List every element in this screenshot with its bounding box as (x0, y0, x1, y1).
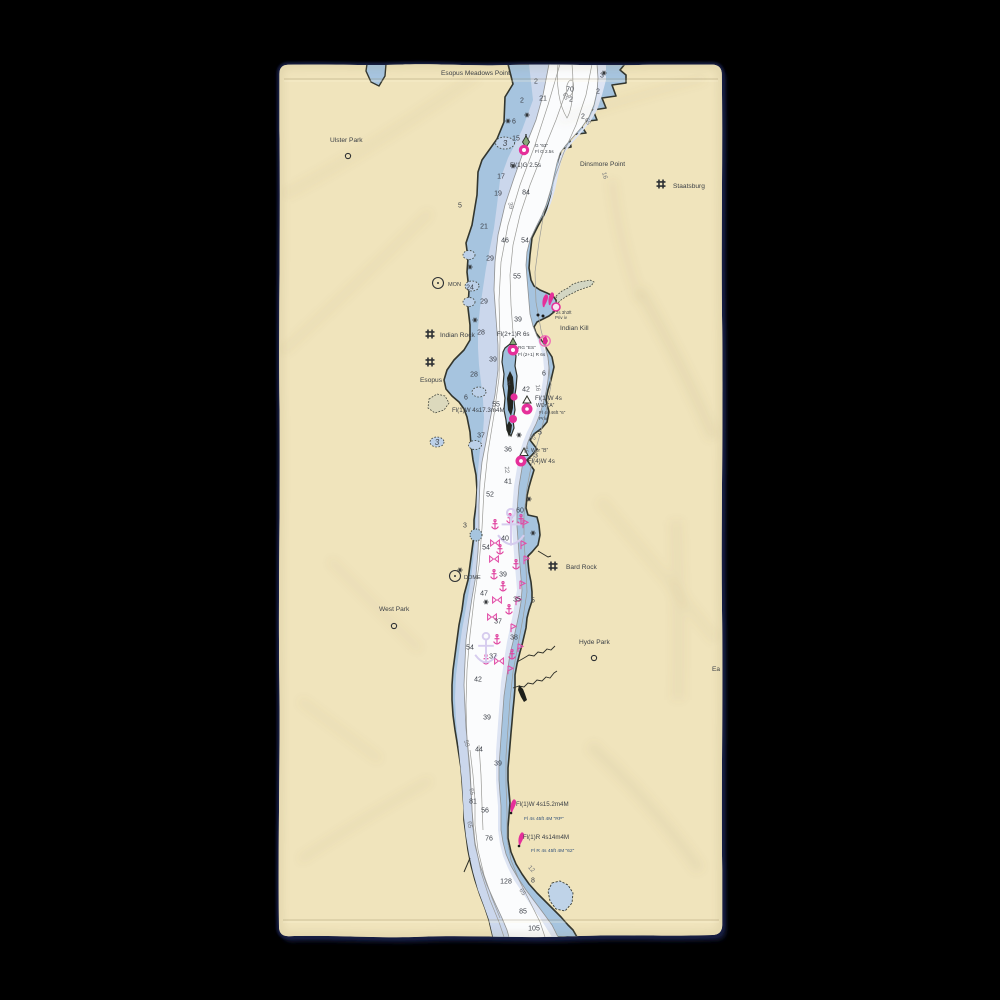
svg-text:DOME: DOME (464, 575, 481, 581)
svg-text:37: 37 (477, 433, 485, 440)
svg-text:35: 35 (513, 597, 521, 604)
svg-text:29: 29 (486, 256, 494, 263)
svg-text:5: 5 (531, 598, 535, 605)
svg-text:37: 37 (489, 654, 497, 661)
svg-text:84: 84 (522, 190, 530, 197)
svg-text:28: 28 (477, 330, 485, 337)
svg-text:2: 2 (596, 89, 600, 96)
svg-text:42: 42 (474, 677, 482, 684)
svg-text:Ulster Park: Ulster Park (330, 137, 363, 144)
svg-text:85: 85 (519, 909, 527, 916)
svg-text:Esopus: Esopus (420, 377, 443, 384)
svg-text:46: 46 (501, 238, 509, 245)
svg-text:Fl(1)R 4s14m4M: Fl(1)R 4s14m4M (523, 834, 569, 841)
svg-text:29: 29 (480, 299, 488, 306)
svg-text:3: 3 (503, 139, 508, 148)
svg-text:Fl(2+1)R 6s: Fl(2+1)R 6s (497, 331, 530, 338)
svg-text:39: 39 (489, 357, 497, 364)
svg-text:54: 54 (482, 545, 490, 552)
svg-text:Fl 4s 45ft 4M “RP”: Fl 4s 45ft 4M “RP” (524, 816, 564, 822)
svg-text:WOr “A”: WOr “A” (536, 403, 555, 409)
svg-text:Fl R 4s 45ft 4M “62”: Fl R 4s 45ft 4M “62” (531, 848, 575, 854)
svg-text:Fl(1)W 4s17.3m4M: Fl(1)W 4s17.3m4M (452, 407, 505, 414)
svg-text:2: 2 (520, 98, 524, 105)
svg-text:19: 19 (494, 191, 502, 198)
svg-text:17: 17 (497, 174, 505, 181)
svg-text:81: 81 (469, 799, 477, 806)
svg-text:128: 128 (500, 879, 512, 886)
svg-text:41: 41 (504, 479, 512, 486)
svg-text:Ea: Ea (712, 666, 720, 673)
svg-text:22: 22 (503, 466, 511, 474)
svg-text:Hyde Park: Hyde Park (579, 639, 610, 646)
svg-text:Priv iv: Priv iv (555, 315, 568, 320)
svg-text:105: 105 (528, 926, 540, 933)
svg-text:38: 38 (510, 635, 518, 642)
svg-text:47: 47 (480, 591, 488, 598)
svg-text:52: 52 (486, 492, 494, 499)
svg-text:36: 36 (504, 447, 512, 454)
svg-text:5: 5 (538, 430, 542, 437)
svg-text:24: 24 (466, 285, 474, 292)
svg-text:39: 39 (494, 761, 502, 768)
svg-text:4: 4 (507, 381, 511, 388)
svg-text:Fl(1)G 2.5s: Fl(1)G 2.5s (510, 162, 541, 169)
svg-text:42: 42 (522, 387, 530, 394)
svg-text:Fl 4s 46ft “6”: Fl 4s 46ft “6” (539, 410, 566, 415)
svg-text:Bard Rock: Bard Rock (566, 564, 597, 571)
svg-text:Priv: Priv (539, 416, 548, 421)
svg-text:6: 6 (464, 395, 468, 402)
svg-text:Fl(4)W 4s: Fl(4)W 4s (528, 458, 555, 465)
svg-text:Indian Rock: Indian Rock (440, 332, 476, 339)
svg-text:15: 15 (512, 136, 520, 143)
svg-text:76: 76 (485, 836, 493, 843)
svg-text:39: 39 (483, 715, 491, 722)
svg-text:55: 55 (513, 274, 521, 281)
svg-text:39: 39 (514, 317, 522, 324)
svg-text:39: 39 (499, 572, 507, 579)
svg-text:Fl G 2.5s: Fl G 2.5s (535, 149, 554, 154)
svg-text:6: 6 (512, 119, 516, 126)
svg-text:Fl(1)W 4s: Fl(1)W 4s (535, 395, 562, 402)
svg-text:21: 21 (539, 96, 547, 103)
svg-text:54: 54 (521, 238, 529, 245)
svg-text:3: 3 (463, 523, 467, 530)
svg-text:Wor “B”: Wor “B” (531, 448, 548, 454)
svg-text:Indian Kill: Indian Kill (560, 325, 589, 332)
svg-text:Fl(1)W 4s15.2m4M: Fl(1)W 4s15.2m4M (516, 801, 569, 808)
svg-text:Staatsburg: Staatsburg (673, 183, 705, 190)
svg-text:28: 28 (470, 372, 478, 379)
svg-text:3: 3 (435, 438, 440, 447)
svg-text:6: 6 (542, 371, 546, 378)
svg-text:21: 21 (480, 224, 488, 231)
svg-text:37: 37 (494, 619, 502, 626)
svg-text:RG “ES”: RG “ES” (518, 345, 536, 350)
svg-text:G “63”: G “63” (535, 143, 548, 148)
svg-text:16: 16 (534, 384, 542, 392)
svg-text:Fl (2+1) R 6s: Fl (2+1) R 6s (518, 352, 546, 357)
svg-text:5: 5 (458, 203, 462, 210)
svg-text:56: 56 (481, 808, 489, 815)
svg-text:Dinsmore Point: Dinsmore Point (580, 161, 625, 168)
svg-text:40: 40 (501, 536, 509, 543)
svg-text:MON: MON (448, 282, 461, 288)
svg-text:54: 54 (466, 645, 474, 652)
svg-text:44: 44 (475, 747, 483, 754)
svg-text:8: 8 (531, 878, 535, 885)
svg-text:60: 60 (516, 508, 524, 515)
